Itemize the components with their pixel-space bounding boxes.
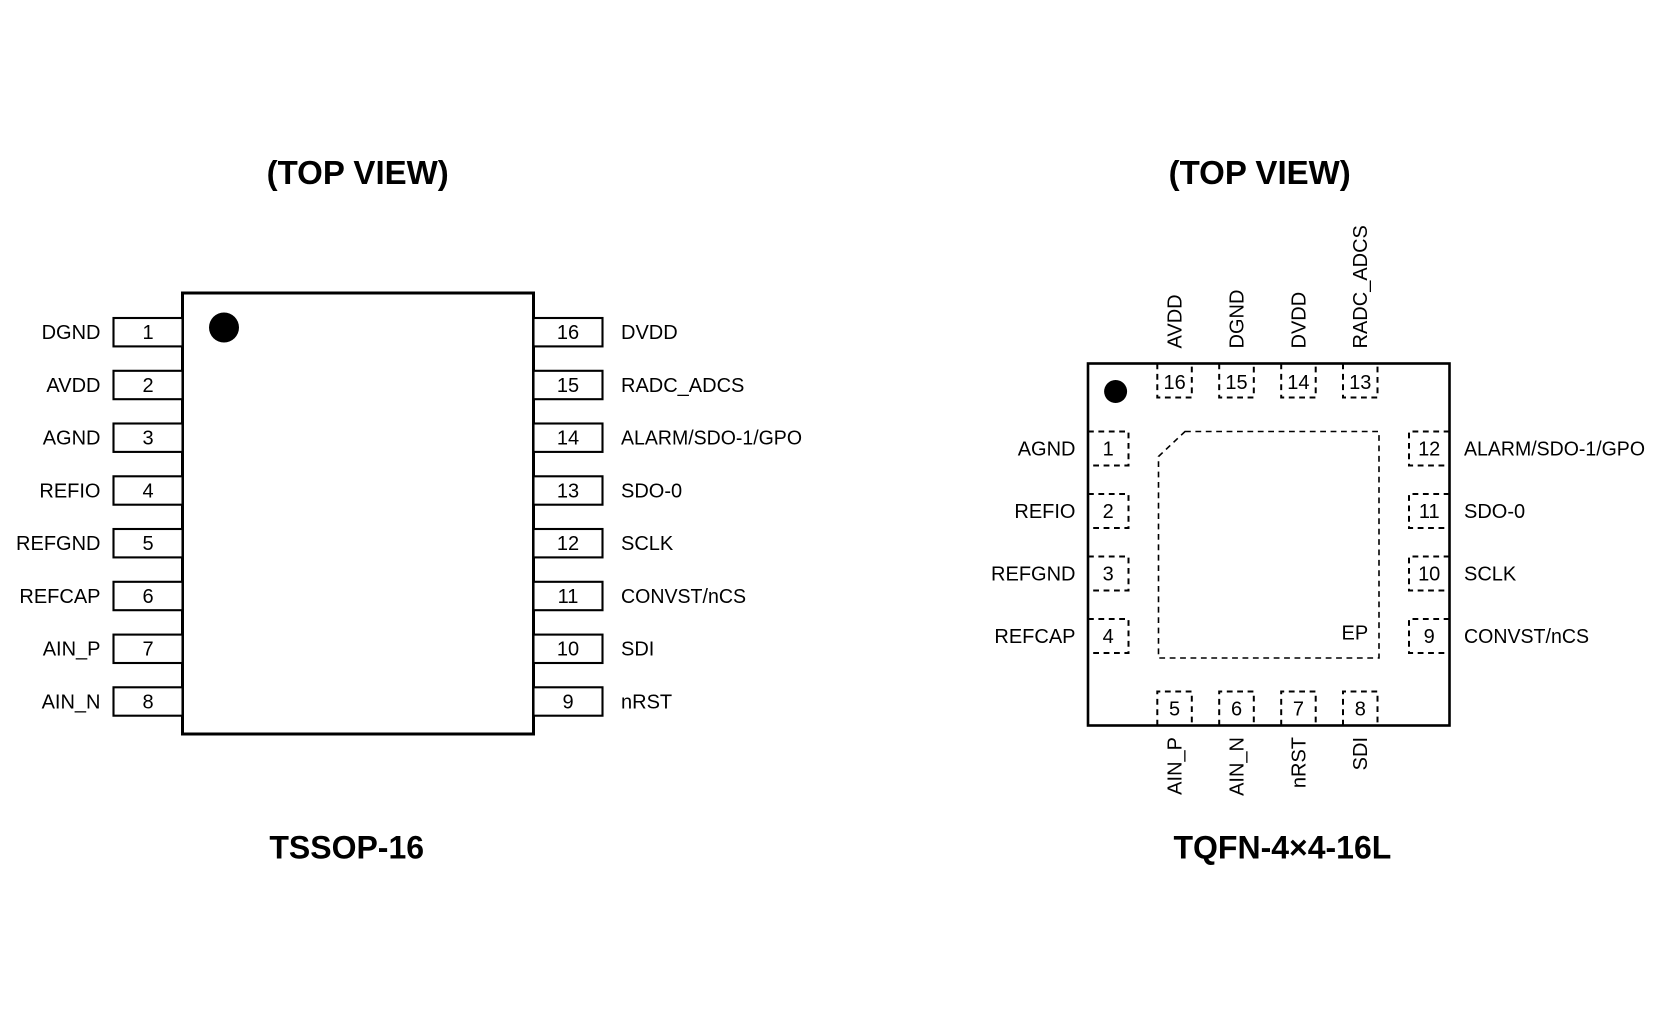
svg-text:CONVST/nCS: CONVST/nCS: [1464, 626, 1589, 648]
svg-text:CONVST/nCS: CONVST/nCS: [621, 586, 746, 608]
svg-text:REFCAP: REFCAP: [19, 586, 100, 608]
svg-text:3: 3: [142, 428, 153, 450]
svg-text:SDO-0: SDO-0: [621, 480, 682, 502]
svg-text:SCLK: SCLK: [621, 533, 674, 555]
svg-text:REFIO: REFIO: [39, 480, 100, 502]
svg-text:13: 13: [557, 480, 579, 502]
svg-text:5: 5: [1169, 698, 1180, 720]
svg-text:9: 9: [562, 691, 573, 713]
svg-text:2: 2: [142, 375, 153, 397]
svg-text:REFCAP: REFCAP: [994, 626, 1075, 648]
svg-text:15: 15: [557, 375, 579, 397]
svg-text:7: 7: [142, 639, 153, 661]
svg-text:15: 15: [1225, 372, 1247, 394]
svg-text:AVDD: AVDD: [46, 375, 100, 397]
svg-text:REFGND: REFGND: [16, 533, 100, 555]
svg-text:10: 10: [1418, 563, 1440, 585]
svg-text:ALARM/SDO-1/GPO: ALARM/SDO-1/GPO: [1464, 438, 1645, 460]
svg-text:7: 7: [1293, 698, 1304, 720]
svg-text:8: 8: [142, 691, 153, 713]
svg-text:REFGND: REFGND: [991, 563, 1075, 585]
svg-text:9: 9: [1424, 626, 1435, 648]
svg-text:AGND: AGND: [43, 428, 101, 450]
svg-text:DVDD: DVDD: [621, 322, 678, 344]
svg-text:SCLK: SCLK: [1464, 563, 1517, 585]
svg-text:16: 16: [1163, 372, 1185, 394]
svg-text:1: 1: [142, 322, 153, 344]
svg-text:(TOP VIEW): (TOP VIEW): [1169, 154, 1351, 191]
svg-text:RADC_ADCS: RADC_ADCS: [621, 375, 744, 397]
svg-text:14: 14: [1287, 372, 1309, 394]
svg-text:5: 5: [142, 533, 153, 555]
svg-text:DVDD: DVDD: [1288, 292, 1310, 349]
svg-text:16: 16: [557, 322, 579, 344]
svg-text:11: 11: [1419, 501, 1440, 523]
svg-text:RADC_ADCS: RADC_ADCS: [1350, 225, 1372, 348]
svg-text:11: 11: [558, 586, 579, 608]
svg-text:nRST: nRST: [1288, 737, 1310, 788]
svg-text:(TOP VIEW): (TOP VIEW): [267, 154, 449, 191]
svg-text:REFIO: REFIO: [1014, 501, 1075, 523]
svg-text:4: 4: [1103, 626, 1114, 648]
svg-text:1: 1: [1103, 438, 1114, 460]
svg-text:TQFN-4×4-16L: TQFN-4×4-16L: [1173, 830, 1391, 866]
svg-text:SDO-0: SDO-0: [1464, 501, 1525, 523]
svg-text:DGND: DGND: [1226, 290, 1248, 349]
svg-text:3: 3: [1103, 563, 1114, 585]
svg-text:AVDD: AVDD: [1165, 294, 1187, 348]
svg-text:4: 4: [142, 480, 153, 502]
svg-text:nRST: nRST: [621, 691, 672, 713]
svg-text:12: 12: [557, 533, 579, 555]
svg-text:SDI: SDI: [1350, 737, 1372, 770]
svg-text:6: 6: [142, 586, 153, 608]
svg-text:DGND: DGND: [42, 322, 101, 344]
svg-text:ALARM/SDO-1/GPO: ALARM/SDO-1/GPO: [621, 428, 802, 450]
svg-text:AIN_N: AIN_N: [42, 691, 101, 713]
svg-text:TSSOP-16: TSSOP-16: [269, 830, 424, 866]
svg-text:8: 8: [1355, 698, 1366, 720]
svg-text:AGND: AGND: [1018, 438, 1076, 460]
svg-text:12: 12: [1418, 438, 1440, 460]
svg-text:AIN_P: AIN_P: [43, 639, 101, 661]
svg-text:SDI: SDI: [621, 639, 654, 661]
svg-text:2: 2: [1103, 501, 1114, 523]
svg-text:AIN_N: AIN_N: [1226, 737, 1248, 796]
svg-text:10: 10: [557, 639, 579, 661]
svg-text:EP: EP: [1342, 622, 1369, 644]
svg-text:14: 14: [557, 428, 579, 450]
svg-text:6: 6: [1231, 698, 1242, 720]
svg-text:13: 13: [1349, 372, 1371, 394]
svg-text:AIN_P: AIN_P: [1165, 737, 1187, 795]
